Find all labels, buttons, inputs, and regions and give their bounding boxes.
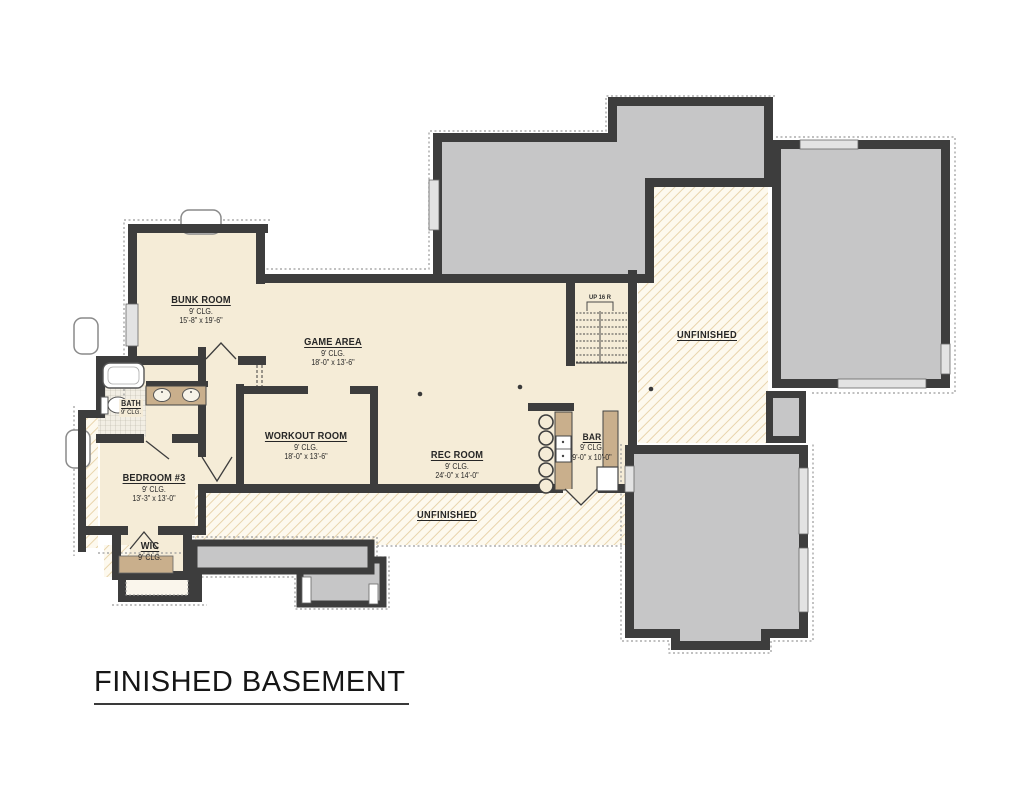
room-name: REC ROOM xyxy=(431,449,483,462)
window-bunk-left xyxy=(126,304,138,346)
room-name: WORKOUT ROOM xyxy=(265,430,347,443)
room-dims: 18'-0" x 13'-6" xyxy=(304,358,362,368)
window-lower-right-1 xyxy=(799,468,808,534)
plan-title: FINISHED BASEMENT xyxy=(94,666,409,705)
bar-stool xyxy=(539,415,553,429)
room-ceiling: 9' CLG. xyxy=(121,409,141,417)
bar-stool xyxy=(539,479,553,493)
window-lower-right-2 xyxy=(799,548,808,612)
vanity-sink-2 xyxy=(183,389,200,402)
room-dims: 18'-0" x 13'-6" xyxy=(265,452,347,462)
room-name: BEDROOM #3 xyxy=(123,472,186,485)
window-garage-right xyxy=(941,344,950,374)
area-name: UNFINISHED xyxy=(417,509,477,522)
vanity-sink-1 xyxy=(154,389,171,402)
room-name: BAR xyxy=(572,432,611,443)
toilet-tank xyxy=(101,397,108,414)
area-label-unfinished-right: UNFINISHED xyxy=(677,329,737,342)
window-well-left-upper xyxy=(74,318,98,354)
room-name: GAME AREA xyxy=(304,336,362,349)
room-dims: 24'-0" x 14'-0" xyxy=(431,471,483,481)
porch-slot-2 xyxy=(369,584,378,604)
room-name: BATH xyxy=(121,399,141,409)
bar-stool xyxy=(539,447,553,461)
bar-stool xyxy=(539,463,553,477)
area-label-unfinished-bottom: UNFINISHED xyxy=(417,509,477,522)
room-label-bunk-room: BUNK ROOM 9' CLG. 15'-8" x 19'-6" xyxy=(171,294,231,326)
garage-door-top xyxy=(800,140,858,149)
room-ceiling: 9' CLG. xyxy=(138,553,162,563)
room-ceiling: 9' CLG. xyxy=(431,462,483,472)
room-label-bath: BATH 9' CLG. xyxy=(119,399,143,417)
room-label-wic: WIC 9' CLG. xyxy=(138,540,162,562)
unexcavated-bottom-right xyxy=(630,450,804,646)
window-lower-left xyxy=(625,466,634,492)
room-label-bar: BAR 9' CLG. 9'-0" x 10'-0" xyxy=(572,432,611,463)
bar-fridge xyxy=(597,467,618,491)
garage-door-bottom xyxy=(838,379,926,388)
small-gray-room xyxy=(770,395,803,440)
room-ceiling: 9' CLG. xyxy=(572,443,611,453)
room-name: WIC xyxy=(138,540,162,553)
room-ceiling: 9' CLG. xyxy=(265,443,347,453)
room-dims: 13'-3" x 13'-0" xyxy=(123,494,186,504)
room-label-bedroom-3: BEDROOM #3 9' CLG. 13'-3" x 13'-0" xyxy=(123,472,186,504)
room-ceiling: 9' CLG. xyxy=(123,485,186,495)
room-dims: 15'-8" x 19'-6" xyxy=(171,316,231,326)
room-ceiling: 9' CLG. xyxy=(304,349,362,359)
area-name: UNFINISHED xyxy=(677,329,737,342)
garage-top-right xyxy=(777,145,946,384)
room-label-workout-room: WORKOUT ROOM 9' CLG. 18'-0" x 13'-6" xyxy=(265,430,347,462)
floor-plan-page: BUNK ROOM 9' CLG. 15'-8" x 19'-6" GAME A… xyxy=(0,0,1024,791)
porch-slot-1 xyxy=(302,577,311,603)
room-name: BUNK ROOM xyxy=(171,294,231,307)
porch-strip xyxy=(194,543,371,571)
bar-stool xyxy=(539,431,553,445)
room-label-game-area: GAME AREA 9' CLG. 18'-0" x 13'-6" xyxy=(304,336,362,368)
room-dims: 9'-0" x 10'-0" xyxy=(572,453,611,463)
window-gray-left xyxy=(429,180,439,230)
room-label-rec-room: REC ROOM 9' CLG. 24'-0" x 14'-0" xyxy=(431,449,483,481)
room-ceiling: 9' CLG. xyxy=(171,307,231,317)
stairs-direction-label: UP 16 R xyxy=(589,294,611,301)
